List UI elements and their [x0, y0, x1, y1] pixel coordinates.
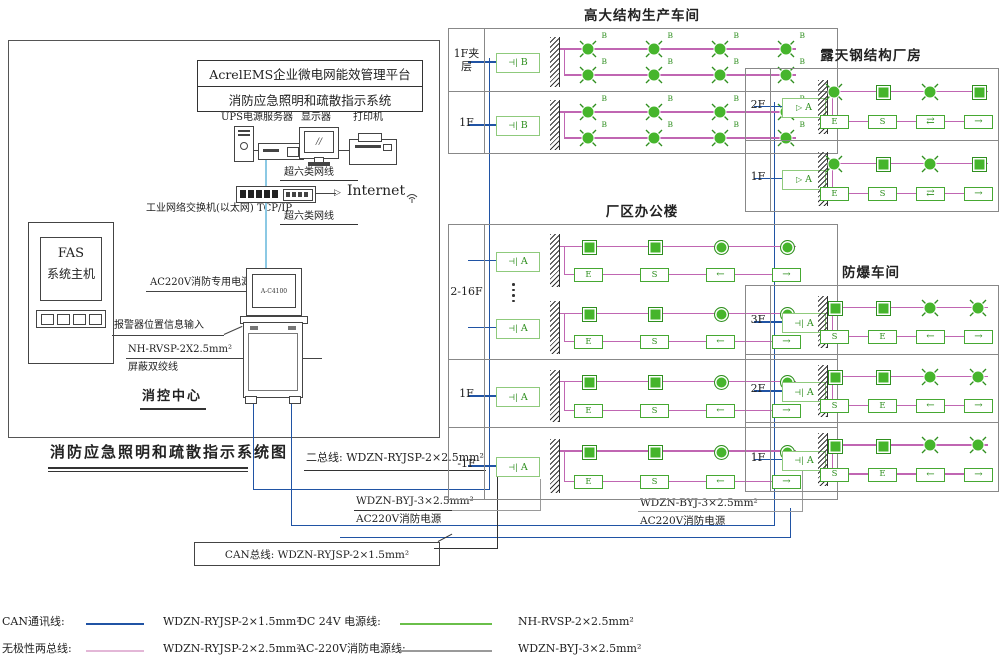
repeat-dots [512, 294, 515, 297]
controller-box: ⊣|A [496, 319, 540, 339]
section-title-steel: 露天钢结构厂房 [745, 44, 997, 64]
floodlight-icon [968, 435, 988, 455]
lamp-tag: B [733, 120, 739, 129]
downlight-icon [582, 375, 597, 390]
downlight-icon [876, 301, 891, 316]
right-trunk-2 [340, 537, 791, 538]
lamp-tag: B [667, 31, 673, 40]
sign-glyph: S [880, 190, 886, 199]
cable-note-label: 屏蔽双绞线 [128, 362, 178, 374]
floor-row: 1F⊣|ASE←→ [746, 422, 998, 492]
section-title-tall: 高大结构生产车间 [448, 4, 836, 24]
floodlight-icon: B [578, 65, 598, 85]
floodlight-icon: B [644, 39, 664, 59]
exit-sign: S [820, 468, 849, 482]
lamp-tag: B [733, 57, 739, 66]
floor-label: 2F [746, 69, 771, 140]
sign-glyph: ← [716, 337, 724, 347]
sign-glyph: → [974, 332, 982, 342]
wall-hatch-icon [550, 234, 560, 286]
cat6-underline-bottom [280, 224, 358, 225]
two-bus-line [827, 444, 988, 445]
fas-label-line2: 系统主机 [41, 265, 101, 282]
exit-sign: E [868, 468, 897, 482]
power-leader-mid [452, 510, 540, 511]
two-bus-line [827, 307, 988, 308]
controller-label: A [807, 455, 814, 466]
right-trunk-riser [790, 508, 791, 538]
exit-sign: S [640, 335, 669, 349]
downlight-icon [648, 375, 663, 390]
terminal-bars-icon: ⊣| [508, 393, 518, 402]
sign-glyph: S [652, 407, 658, 416]
sign-glyph: → [974, 189, 982, 199]
floor-row: 2F⊣|ASE←→ [746, 354, 998, 423]
repeat-dots [512, 283, 515, 286]
direction-sign: → [964, 330, 993, 344]
monitor-icon: ∕∕ [299, 127, 339, 159]
can-run-to-label [434, 548, 498, 549]
workstation-cabinet [243, 322, 303, 398]
downlight-icon [876, 370, 891, 385]
right-trunk-1 [291, 525, 775, 526]
legend-spec: WDZN-RYJSP-2×1.5mm² [163, 616, 301, 629]
downlight-icon [828, 439, 843, 454]
legend-line-swatch [86, 623, 144, 625]
workstation-screen-label: A-C4100 [261, 288, 287, 295]
two-bus-line [827, 163, 988, 164]
sign-glyph: E [585, 407, 591, 416]
cat6-line-2 [265, 201, 267, 268]
floor-label: 2F [746, 355, 771, 423]
floor-content: ⊣|ASE←→ [770, 423, 998, 492]
floodlight-icon: B [710, 39, 730, 59]
direction-sign: ← [916, 399, 945, 413]
legend-label: DC 24V 电源线: [298, 616, 381, 629]
page-title-underline-1 [48, 467, 248, 469]
direction-sign: → [964, 115, 993, 129]
legend-line-swatch [400, 650, 492, 652]
lamp-tag: B [667, 120, 673, 129]
floodlight-icon [920, 154, 940, 174]
workstation-foot-left [245, 396, 257, 404]
controller-label: A [521, 462, 528, 473]
sign-glyph: E [879, 333, 885, 342]
exit-sign: S [640, 268, 669, 282]
terminal-bars-icon: ⊣| [508, 121, 518, 130]
platform-title-box: AcrelEMS企业微电网能效管理平台 消防应急照明和疏散指示系统 [197, 60, 423, 112]
terminal-bars-icon: ⊣| [508, 463, 518, 472]
can-bus-label-box: CAN总线: WDZN-RYJSP-2×1.5mm² [194, 542, 440, 566]
sign-glyph: S [832, 470, 838, 479]
triangle-icon: ▷ [796, 175, 802, 184]
controller-box: ⊣|B [496, 53, 540, 73]
ceiling-lamp-icon [780, 240, 795, 255]
sign-glyph: S [652, 338, 658, 347]
two-bus-elbow [564, 451, 565, 481]
terminal-bars-icon: ⊣| [794, 388, 804, 397]
sign-glyph: ← [926, 401, 934, 411]
exit-sign: E [820, 187, 849, 201]
floor-label: 1F夹层 [449, 29, 485, 91]
floodlight-icon [824, 82, 844, 102]
controller-label: A [521, 256, 528, 267]
triangle-icon: ▷ [796, 103, 802, 112]
section-exproof: 3F⊣|ASE←→2F⊣|ASE←→1F⊣|ASE←→ [745, 285, 999, 492]
controller-box: ⊣|A [496, 387, 540, 407]
direction-sign: ← [706, 335, 735, 349]
controller-box: ⊣|A [496, 457, 540, 477]
downlight-icon [648, 240, 663, 255]
legend-label: CAN通讯线: [2, 616, 65, 629]
internet-arrow-line [314, 193, 336, 194]
ws-drop-2 [291, 402, 292, 526]
printer-label: 打印机 [353, 112, 383, 124]
ups-icon [234, 126, 254, 162]
controller-label: B [521, 120, 528, 131]
downlight-icon [828, 370, 843, 385]
floodlight-icon: B [578, 102, 598, 122]
ceiling-lamp-icon [714, 307, 729, 322]
downlight-icon [876, 85, 891, 100]
floodlight-icon: B [644, 102, 664, 122]
alarm-input-label: 报警器位置信息输入 [114, 320, 204, 332]
floor-row: 2F▷AES⇄→ [746, 69, 998, 140]
exit-sign: S [820, 399, 849, 413]
downlight-icon [876, 439, 891, 454]
floor-row: 3F⊣|ASE←→ [746, 286, 998, 354]
alarm-input-line [112, 335, 224, 336]
wifi-icon [404, 188, 420, 207]
cat6-line-1 [265, 158, 267, 186]
controller-label: A [521, 323, 528, 334]
ac220-dedicated-line [146, 291, 246, 292]
floodlight-icon [824, 154, 844, 174]
sign-glyph: ⇄ [926, 189, 934, 199]
cat6-underline-top [280, 180, 358, 181]
server-label: 服务器 [263, 112, 293, 124]
floor-label: 1F [746, 141, 771, 212]
floor-label: 2-16F [449, 225, 485, 359]
display-label: 显示器 [301, 112, 331, 124]
controller-label: A [805, 174, 812, 185]
lamp-tag: B [733, 31, 739, 40]
platform-title-line1: AcrelEMS企业微电网能效管理平台 [198, 61, 422, 87]
terminal-bars-icon: ⊣| [794, 319, 804, 328]
floor-content: ⊣|ASE←→ [770, 355, 998, 423]
floodlight-icon [968, 367, 988, 387]
downlight-icon [582, 307, 597, 322]
wall-hatch-icon [550, 370, 560, 423]
terminal-bars-icon: ⊣| [508, 58, 518, 67]
floodlight-icon [920, 298, 940, 318]
sign-glyph: → [974, 117, 982, 127]
floodlight-icon: B [578, 128, 598, 148]
exit-sign: E [574, 335, 603, 349]
downlight-icon [648, 307, 663, 322]
floodlight-icon [968, 298, 988, 318]
exit-sign: E [868, 330, 897, 344]
floor-content: ▷AES⇄→ [770, 141, 998, 212]
floodlight-icon: B [644, 128, 664, 148]
fas-label-line1: FAS [41, 246, 101, 261]
exit-sign: S [640, 404, 669, 418]
sign-glyph: E [879, 470, 885, 479]
sign-glyph: E [585, 271, 591, 280]
direction-sign: ⇄ [916, 115, 945, 129]
platform-title-line2: 消防应急照明和疏散指示系统 [198, 87, 422, 111]
sign-glyph: S [832, 333, 838, 342]
exit-sign: E [820, 115, 849, 129]
downlight-icon [828, 301, 843, 316]
lamp-tag: B [601, 31, 607, 40]
legend-spec: WDZN-BYJ-3×2.5mm² [518, 643, 641, 656]
terminal-bars-icon: ⊣| [508, 257, 518, 266]
lamp-tag: B [733, 94, 739, 103]
two-bus-line [827, 376, 988, 377]
controller-label: A [521, 392, 528, 403]
printer-icon [349, 139, 397, 165]
lamp-tag: B [601, 57, 607, 66]
two-bus-elbow [564, 112, 565, 138]
floor-label: 3F [746, 286, 771, 354]
lamp-tag: B [667, 94, 673, 103]
direction-sign: → [964, 187, 993, 201]
sign-glyph: → [974, 470, 982, 480]
ceiling-lamp-icon [714, 445, 729, 460]
sign-glyph: ← [926, 470, 934, 480]
lamp-tag: B [601, 120, 607, 129]
direction-sign: ← [916, 330, 945, 344]
sign-glyph: ← [716, 477, 724, 487]
direction-sign: → [964, 468, 993, 482]
room-underline [140, 408, 206, 410]
power-mid-underline [354, 510, 454, 511]
sign-glyph: S [652, 478, 658, 487]
internet-label: Internet [347, 183, 405, 199]
workstation-monitor: A-C4100 [246, 268, 302, 316]
floor-content: ▷AES⇄→ [770, 69, 998, 140]
sign-glyph: ← [926, 332, 934, 342]
ac220-dedicated-label: AC220V消防专用电源 [150, 277, 251, 289]
downlight-icon [582, 240, 597, 255]
two-bus-elbow [564, 246, 565, 274]
lamp-tag: B [601, 94, 607, 103]
terminal-bars-icon: ⊣| [508, 324, 518, 333]
wall-hatch-icon [550, 439, 560, 493]
direction-sign: ← [916, 468, 945, 482]
exit-sign: E [868, 399, 897, 413]
controller-label: A [805, 102, 812, 113]
controller-label: A [807, 318, 814, 329]
ceiling-lamp-icon [714, 375, 729, 390]
cable-spec-label: NH-RVSP-2X2.5mm² [128, 344, 232, 356]
wall-hatch-icon [550, 37, 560, 87]
sign-glyph: ← [716, 406, 724, 416]
fas-terminal-strip [36, 310, 106, 328]
exit-sign: S [820, 330, 849, 344]
power-mid-name-label: AC220V消防电源 [356, 513, 441, 525]
sign-glyph: E [585, 338, 591, 347]
monitor-base [308, 162, 330, 166]
repeat-dots [512, 300, 515, 303]
two-bus-elbow [564, 382, 565, 411]
downlight-icon [972, 157, 987, 172]
lamp-tag: B [799, 31, 805, 40]
legend-label: AC-220V消防电源线: [298, 643, 406, 656]
ceiling-lamp-icon [714, 240, 729, 255]
ethernet-switch-icon [236, 186, 316, 203]
fas-host-box: FAS 系统主机 [40, 237, 102, 301]
floodlight-icon [920, 367, 940, 387]
cat6-label-bottom: 超六类网线 [284, 211, 334, 223]
repeat-dots [512, 289, 515, 292]
cat6-label-top: 超六类网线 [284, 167, 334, 179]
server-icon [258, 143, 304, 160]
floodlight-icon: B [644, 65, 664, 85]
sign-glyph: → [974, 401, 982, 411]
floor-label: -1F [449, 428, 485, 500]
sign-glyph: ← [716, 270, 724, 280]
exit-sign: E [574, 404, 603, 418]
controller-box: ⊣|A [496, 252, 540, 272]
two-bus-line [827, 91, 988, 92]
downlight-icon [648, 445, 663, 460]
floodlight-icon: B [710, 128, 730, 148]
sign-glyph: E [831, 118, 837, 127]
ws-drop-1 [253, 402, 254, 490]
exit-sign: S [640, 475, 669, 489]
switch-label: 工业网络交换机(以太网) TCP/IP [146, 203, 292, 215]
two-bus-elbow [564, 313, 565, 341]
page-title-underline-2 [48, 471, 248, 472]
sign-glyph: E [879, 402, 885, 411]
legend-line-swatch [400, 623, 492, 625]
ups-label: UPS电源 [221, 112, 263, 124]
sign-glyph: ⇄ [926, 117, 934, 127]
direction-sign: ← [706, 475, 735, 489]
controller-label: A [807, 387, 814, 398]
fire-emergency-lighting-system-diagram: AcrelEMS企业微电网能效管理平台 消防应急照明和疏散指示系统 UPS电源 … [0, 0, 1005, 660]
floor-label: 1F [449, 92, 485, 154]
two-bus-elbow [564, 49, 565, 75]
sign-glyph: E [585, 478, 591, 487]
section-steel: 2F▷AES⇄→1F▷AES⇄→ [745, 68, 999, 212]
terminal-bars-icon: ⊣| [794, 456, 804, 465]
floor-label: 1F [449, 360, 485, 428]
floodlight-icon: B [578, 39, 598, 59]
direction-sign: → [964, 399, 993, 413]
floor-content: ⊣|ASE←→ [770, 286, 998, 354]
sign-glyph: S [880, 118, 886, 127]
floodlight-icon: B [710, 65, 730, 85]
exit-sign: E [574, 475, 603, 489]
wall-hatch-icon [550, 301, 560, 353]
downlight-icon [582, 445, 597, 460]
wall-hatch-icon [550, 100, 560, 150]
can-bus-label: CAN总线: WDZN-RYJSP-2×1.5mm² [195, 543, 439, 565]
legend-label: 无极性两总线: [2, 643, 72, 656]
floodlight-icon [920, 435, 940, 455]
exit-sign: E [574, 268, 603, 282]
floor-label: 1F [746, 423, 771, 492]
room-label: 消控中心 [142, 390, 202, 405]
floodlight-icon [920, 82, 940, 102]
exit-sign: S [868, 115, 897, 129]
legend-spec: NH-RVSP-2×2.5mm² [518, 616, 634, 629]
section-title-exproof: 防爆车间 [745, 261, 997, 281]
downlight-icon [972, 85, 987, 100]
exit-sign: S [868, 187, 897, 201]
floodlight-icon: B [710, 102, 730, 122]
sign-glyph: S [652, 271, 658, 280]
controller-label: B [521, 57, 528, 68]
direction-sign: ← [706, 268, 735, 282]
power-leader-right [638, 511, 802, 512]
workstation-foot-right [289, 396, 301, 404]
lamp-tag: B [667, 57, 673, 66]
legend-spec: WDZN-RYJSP-2×2.5mm² [163, 643, 301, 656]
downlight-icon [876, 157, 891, 172]
direction-sign: ⇄ [916, 187, 945, 201]
legend-line-swatch [86, 650, 144, 652]
controller-box: ⊣|B [496, 116, 540, 136]
direction-sign: ← [706, 404, 735, 418]
sign-glyph: S [832, 402, 838, 411]
sign-glyph: E [831, 190, 837, 199]
floor-row: 1F▷AES⇄→ [746, 140, 998, 212]
